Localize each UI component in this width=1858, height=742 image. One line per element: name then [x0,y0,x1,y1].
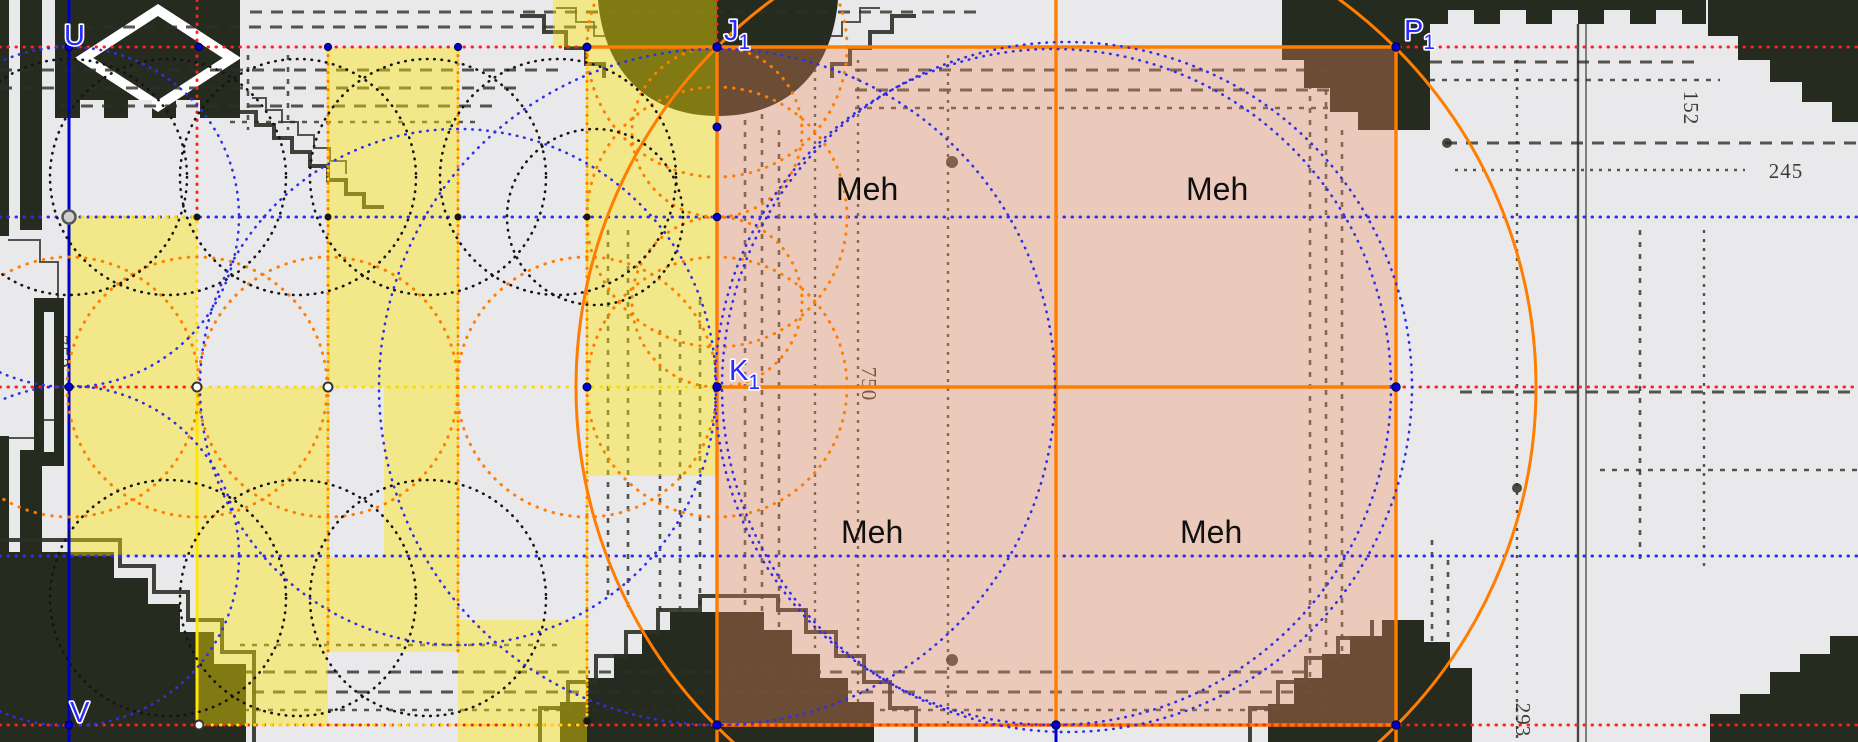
point-open[interactable] [193,383,202,392]
point-P1[interactable] [1392,43,1400,51]
point-open[interactable] [195,721,204,730]
point[interactable] [583,383,591,391]
geometry-canvas[interactable]: 245 152 750 294 293 752 [0,0,1858,742]
point[interactable] [583,717,591,725]
meh-annotation-top-right[interactable]: Meh [1186,171,1248,207]
point[interactable] [195,43,202,50]
point[interactable] [583,43,591,51]
yellow-highlight-cell[interactable] [553,0,587,47]
point[interactable] [713,213,721,221]
label-U[interactable]: U [64,20,85,52]
point[interactable] [324,43,331,50]
dimension-152: 152 [1679,91,1703,126]
point[interactable] [1052,721,1060,729]
point[interactable] [1392,721,1400,729]
label-V[interactable]: V [70,697,90,729]
point[interactable] [454,43,461,50]
point[interactable] [713,721,721,729]
yellow-highlight-cell[interactable] [384,387,458,557]
point[interactable] [455,214,462,221]
point[interactable] [65,383,73,391]
point[interactable] [194,214,201,221]
meh-annotation-bottom-left[interactable]: Meh [841,514,903,550]
yellow-highlight-cell[interactable] [328,557,458,652]
point-open[interactable] [324,383,333,392]
point-open-large[interactable] [63,211,76,224]
meh-annotation-top-left[interactable]: Meh [836,171,898,207]
yellow-highlight-cell[interactable] [587,0,717,476]
point[interactable] [1392,383,1400,391]
point[interactable] [584,214,591,221]
point-J1[interactable] [713,43,721,51]
dimension-245: 245 [1769,159,1804,183]
point[interactable] [713,123,721,131]
meh-annotation-bottom-right[interactable]: Meh [1180,514,1242,550]
dimension-293: 293 [1511,703,1535,738]
point-K1[interactable] [713,383,721,391]
point[interactable] [325,214,332,221]
